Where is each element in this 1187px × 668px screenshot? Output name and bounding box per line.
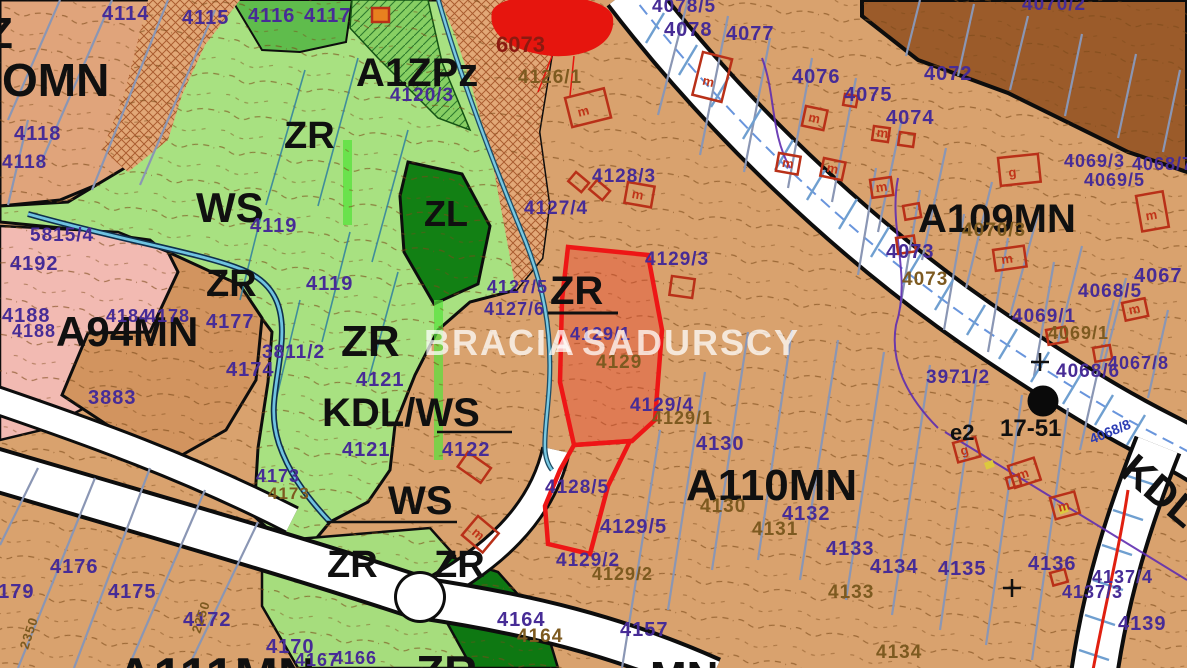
map-label: 4118 <box>2 152 47 173</box>
map-label: 4130 <box>700 496 746 517</box>
map-label: OMN <box>2 54 109 106</box>
map-label: 4118 <box>14 123 61 145</box>
building-letter: m <box>1000 251 1014 267</box>
map-label: 4067 <box>1134 265 1183 287</box>
map-label: 5815/4 <box>30 225 94 246</box>
map-label: 4130 <box>696 433 745 455</box>
map-label: 4166 <box>333 648 377 668</box>
map-label: ZL <box>424 193 468 234</box>
map-label: 4136 <box>1028 553 1077 575</box>
map-label: 4134 <box>870 556 919 578</box>
map-label: 4117 <box>304 5 351 27</box>
building-outline <box>372 8 389 22</box>
map-label: 4179 <box>0 581 35 603</box>
map-label: 6073 <box>496 32 545 57</box>
map-label: 4173 <box>256 466 300 486</box>
map-label: 4126/1 <box>518 67 582 88</box>
map-label: 4075 <box>844 84 893 106</box>
map-label: 4069/3 <box>1064 151 1125 171</box>
map-label: 4177 <box>206 311 255 333</box>
map-label: 4127/4 <box>524 198 588 219</box>
map-label: 4133 <box>828 582 874 603</box>
zoning-map-canvas: mmmmmmmgmmmmgmmm ZOMNA1ZPzZRWSZRA94MNZRZ… <box>0 0 1187 668</box>
map-label: 4119 <box>306 273 353 295</box>
map-label: 17-51 <box>1000 415 1061 442</box>
map-label: 4073 <box>886 241 935 263</box>
map-label: 4069/5 <box>1084 170 1145 190</box>
map-label: 4121 <box>342 439 391 461</box>
map-label: 3971/2 <box>926 367 990 388</box>
map-label: 4135 <box>938 558 987 580</box>
map-label: 4192 <box>10 253 59 275</box>
map-label: 4157 <box>620 619 669 641</box>
building-letter: g <box>1008 164 1018 180</box>
map-label: 4078/5 <box>652 0 716 17</box>
map-label: 4070/3 <box>962 220 1026 241</box>
map-label: 4184 <box>106 306 150 326</box>
map-label: MN <box>650 653 718 668</box>
map-label: KDL/WS <box>322 391 480 435</box>
map-label: 4128/3 <box>592 166 656 187</box>
map-label: 4076 <box>792 66 841 88</box>
map-label: 4174 <box>226 359 275 381</box>
map-label: ZR <box>416 646 477 668</box>
building-letter: m <box>875 179 889 195</box>
map-label: Z <box>0 9 13 58</box>
map-label: 4070/2 <box>1022 0 1086 15</box>
map-label: 4137/3 <box>1062 582 1123 602</box>
map-label: 4127/6 <box>484 299 545 319</box>
map-label: 4067/8 <box>1108 353 1169 373</box>
map-label: 4134 <box>876 642 922 663</box>
map-label: ZR <box>434 544 485 586</box>
map-label: 4072 <box>924 63 973 85</box>
map-label: 4133 <box>826 538 875 560</box>
map-label: 4176 <box>50 556 99 578</box>
map-label: 4119 <box>250 215 297 237</box>
map-label: 4129/1 <box>652 408 713 428</box>
map-label: 4131 <box>752 519 798 540</box>
map-label: 4116 <box>248 5 295 27</box>
black-dot-symbol <box>1028 386 1059 417</box>
map-label: 4175 <box>108 581 157 603</box>
map-label: 4173 <box>268 484 310 503</box>
map-label: WS <box>388 479 452 523</box>
map-label: 4073 <box>902 269 948 290</box>
map-label: ZR <box>284 115 335 157</box>
map-label: 4127/5 <box>487 277 548 297</box>
map-label: 4129/2 <box>592 564 653 584</box>
map-label: 4068/5 <box>1078 281 1142 302</box>
map-label: ZR <box>341 317 400 366</box>
map-label: e2 <box>950 420 974 445</box>
watermark-text-2: SADURSCY <box>582 322 800 363</box>
map-label: 4122 <box>442 439 491 461</box>
map-label: 4129/5 <box>600 516 667 538</box>
map-label: 4077 <box>726 23 775 45</box>
map-label: 4188 <box>12 321 56 341</box>
map-label: 4128/5 <box>545 477 609 498</box>
map-label: 4178 <box>146 306 190 326</box>
watermark-logo-triangle-icon: ▲ <box>550 328 579 358</box>
map-label: 4069/1 <box>1048 323 1109 343</box>
map-label: 4078 <box>664 19 713 41</box>
map-label: 4115 <box>182 7 229 29</box>
map-label: ZR <box>206 263 257 305</box>
map-label: 4139 <box>1118 613 1167 635</box>
map-label: 4074 <box>886 107 935 129</box>
map-label: 3883 <box>88 387 137 409</box>
watermark: BRACIA ▲ SADURSCY <box>424 322 800 363</box>
map-label: 4121 <box>356 369 405 391</box>
map-label: 4129/3 <box>645 249 709 270</box>
map-label: ZR <box>550 269 603 313</box>
map-label: 4164 <box>517 626 563 647</box>
map-label: ZR <box>327 544 378 586</box>
zoning-map: mmmmmmmgmmmmgmmm ZOMNA1ZPzZRWSZRA94MNZRZ… <box>0 0 1187 668</box>
map-label: 4120/3 <box>390 85 454 106</box>
map-label: 4114 <box>102 3 149 25</box>
